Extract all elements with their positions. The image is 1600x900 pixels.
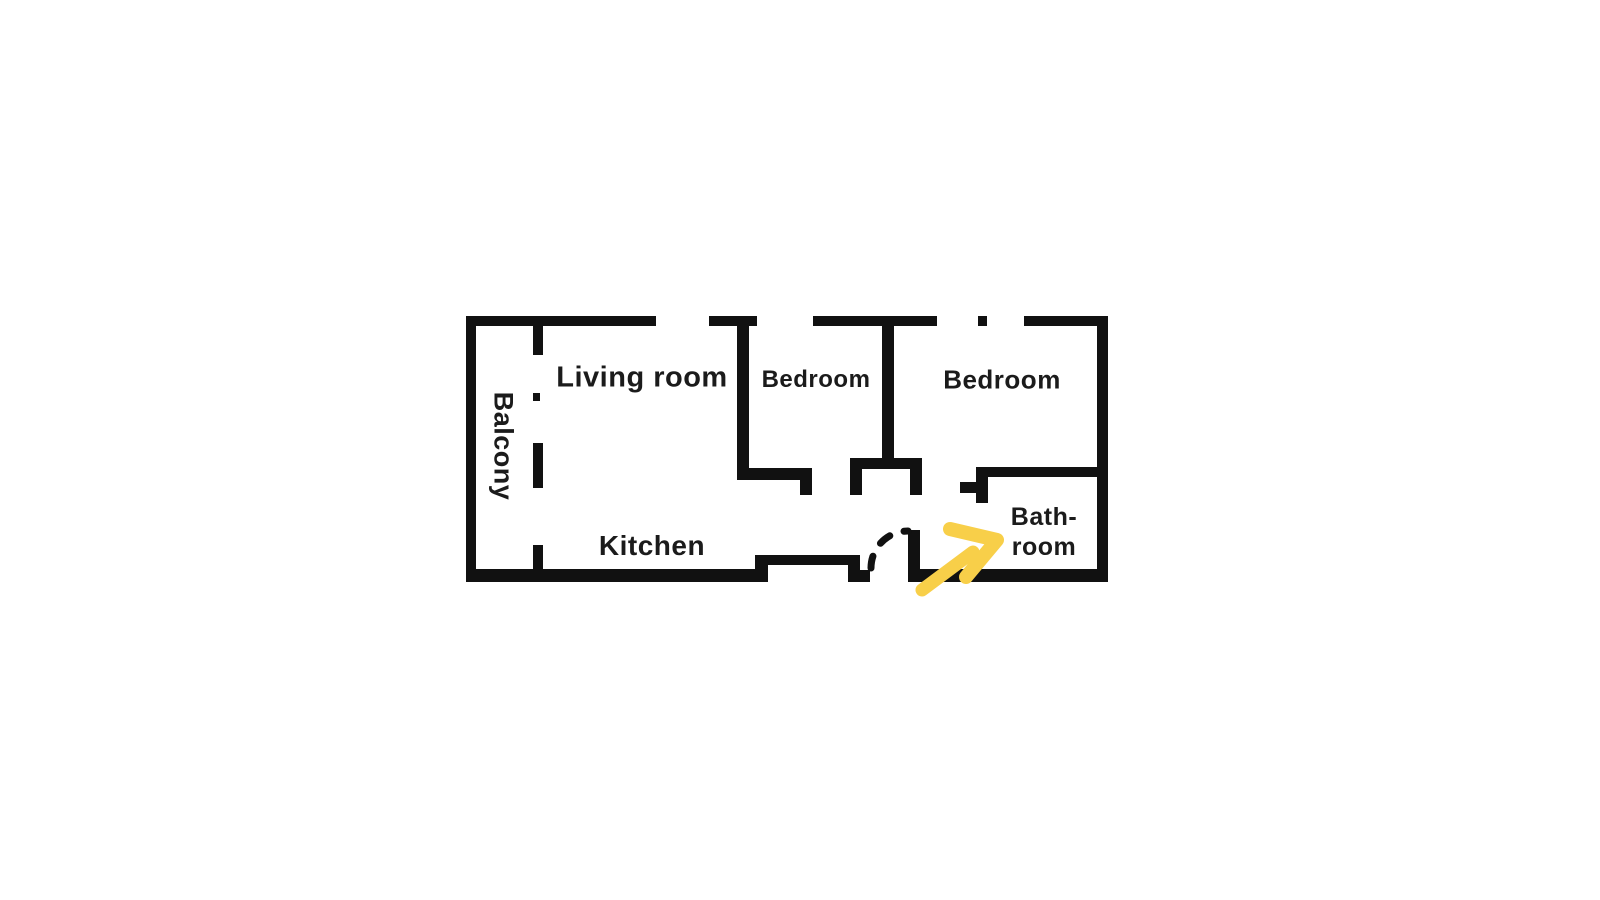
- bedroom-right-label: Bedroom: [943, 365, 1061, 396]
- balcony-label: Balcony: [488, 392, 519, 501]
- outer-wall-top-segment-3: [813, 316, 937, 326]
- entry-step-foot: [848, 570, 870, 582]
- floor-plan-overlay: [0, 0, 1600, 900]
- outer-wall-bottom-right: [908, 569, 1108, 582]
- bedroom-divider-stub-left: [850, 469, 862, 495]
- balcony-wall-pier: [533, 393, 540, 401]
- entry-step-top: [755, 555, 859, 565]
- outer-wall-left: [466, 316, 476, 582]
- bathroom-wall-top: [977, 467, 1108, 477]
- bedroom-left-label: Bedroom: [762, 366, 871, 394]
- balcony-wall-segment-1: [533, 316, 543, 355]
- outer-wall-top-window-pier: [978, 316, 987, 326]
- living-room-label: Living room: [556, 362, 727, 395]
- floor-plan: Balcony Living room Bedroom Bedroom Kitc…: [0, 0, 1600, 900]
- balcony-wall-segment-3: [533, 545, 543, 582]
- entry-door-swing-arc: [871, 531, 908, 568]
- bathroom-label: Bath- room: [1011, 502, 1077, 562]
- bedroom-left-wall-vertical: [737, 316, 749, 468]
- bathroom-label-line-2: room: [1011, 532, 1077, 562]
- bedroom-left-door-stub: [800, 480, 812, 495]
- balcony-wall-segment-2: [533, 443, 543, 488]
- bathroom-label-line-1: Bath-: [1011, 502, 1077, 532]
- kitchen-label: Kitchen: [599, 530, 705, 562]
- bathroom-wall-left-piece: [976, 467, 988, 503]
- bedroom-divider-cap: [850, 458, 922, 469]
- outer-wall-top-segment-2: [709, 316, 757, 326]
- bedroom-divider-wall: [882, 316, 894, 458]
- outer-wall-top-segment-1: [466, 316, 656, 326]
- bedroom-left-wall-bottom: [737, 468, 812, 480]
- outer-wall-right: [1097, 316, 1108, 582]
- bedroom-divider-stub-right: [910, 469, 922, 495]
- bathroom-door-jamb-tick: [960, 482, 977, 493]
- outer-wall-bottom-left: [466, 569, 758, 582]
- outer-wall-top-segment-4: [1024, 316, 1108, 326]
